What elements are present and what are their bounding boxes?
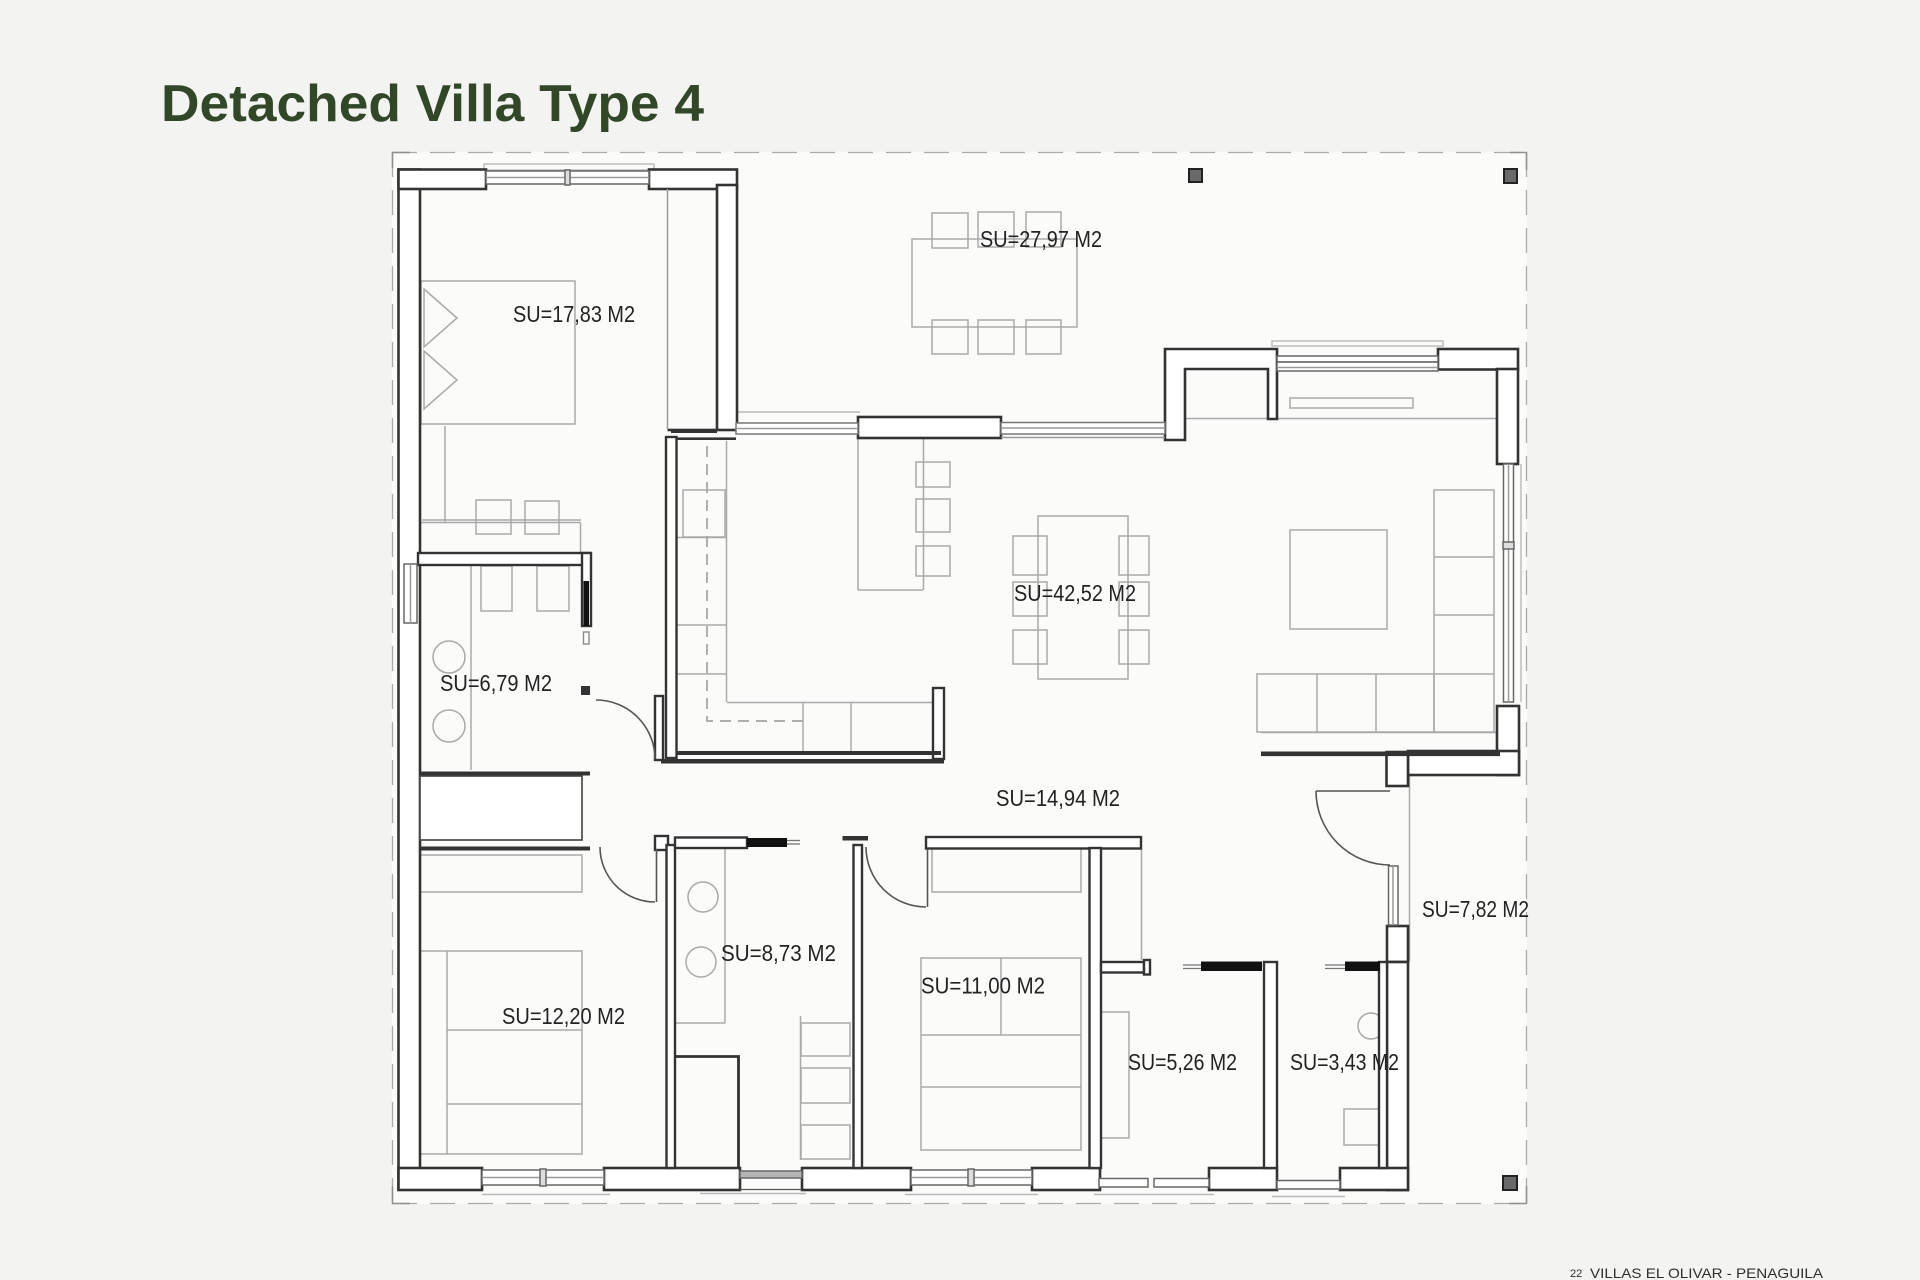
- svg-text:SU=6,79 M2: SU=6,79 M2: [440, 670, 552, 696]
- svg-text:SU=8,73 M2: SU=8,73 M2: [721, 940, 836, 966]
- svg-text:Detached Villa Type 4: Detached Villa Type 4: [161, 75, 704, 133]
- svg-text:SU=7,82 M2: SU=7,82 M2: [1422, 896, 1529, 922]
- svg-text:SU=17,83 M2: SU=17,83 M2: [513, 301, 635, 327]
- svg-text:SU=14,94 M2: SU=14,94 M2: [996, 785, 1120, 811]
- svg-text:22: 22: [1570, 1268, 1582, 1280]
- svg-text:SU=12,20 M2: SU=12,20 M2: [502, 1003, 625, 1029]
- svg-text:SU=27,97 M2: SU=27,97 M2: [980, 226, 1102, 252]
- svg-text:SU=5,26 M2: SU=5,26 M2: [1128, 1049, 1237, 1075]
- svg-text:VILLAS EL OLIVAR - PENAGUILA: VILLAS EL OLIVAR - PENAGUILA: [1590, 1265, 1824, 1280]
- svg-text:SU=42,52 M2: SU=42,52 M2: [1014, 580, 1136, 606]
- svg-text:SU=11,00 M2: SU=11,00 M2: [921, 973, 1045, 999]
- svg-text:SU=3,43 M2: SU=3,43 M2: [1290, 1049, 1399, 1075]
